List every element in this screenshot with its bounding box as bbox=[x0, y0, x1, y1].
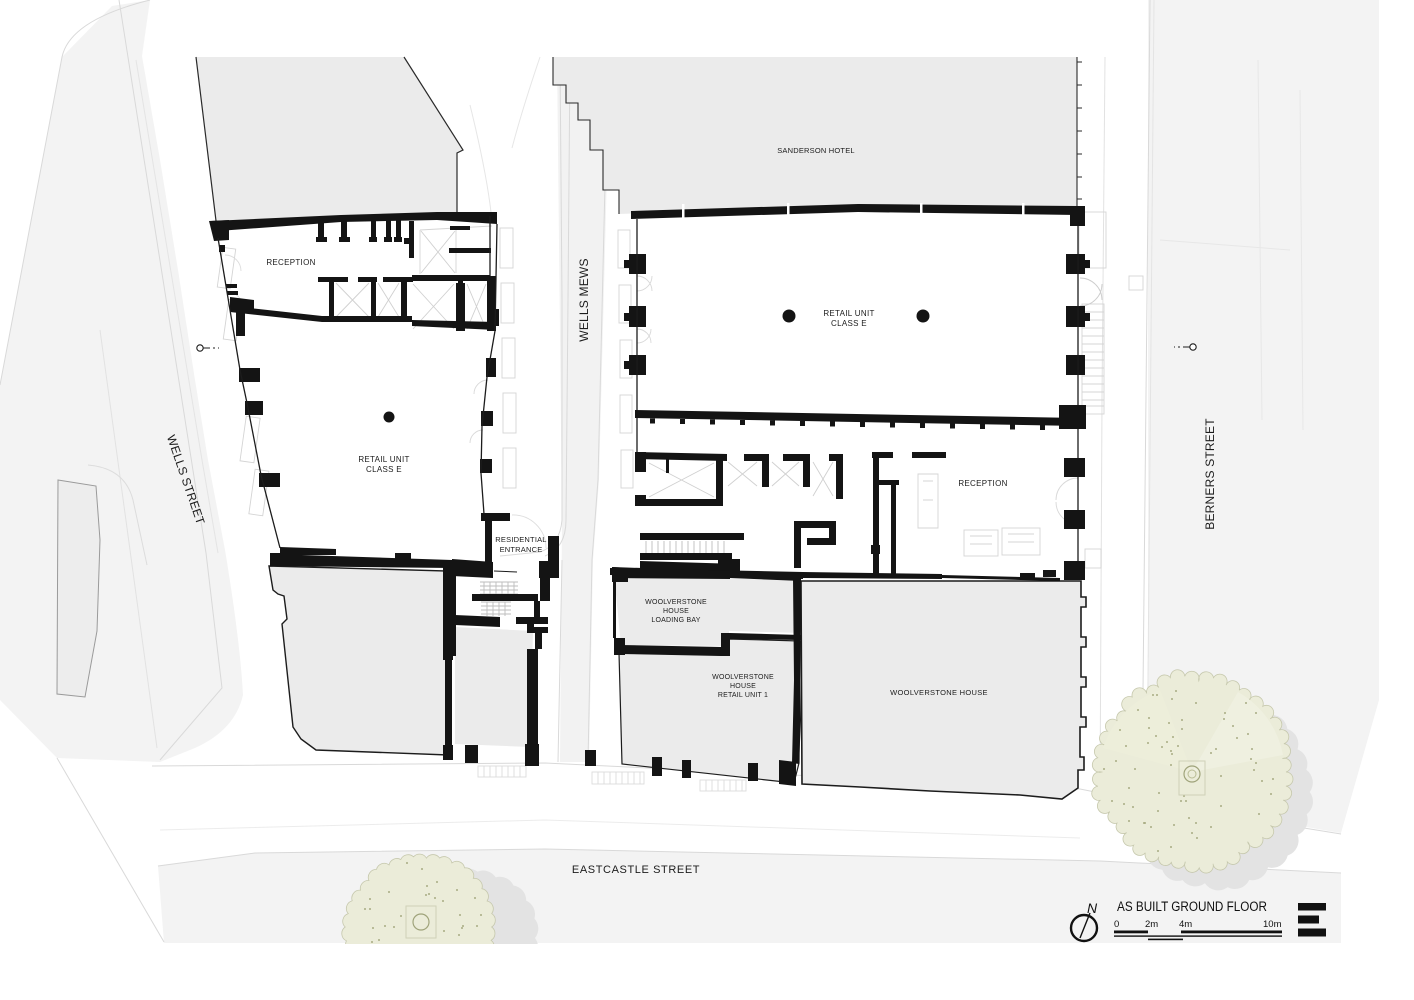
svg-text:EASTCASTLE STREET: EASTCASTLE STREET bbox=[572, 864, 700, 876]
svg-text:0: 0 bbox=[1114, 919, 1119, 930]
svg-text:CLASS E: CLASS E bbox=[366, 465, 402, 474]
svg-text:RESIDENTIAL: RESIDENTIAL bbox=[495, 535, 546, 544]
svg-text:N: N bbox=[1087, 900, 1098, 916]
svg-text:LOADING BAY: LOADING BAY bbox=[651, 617, 700, 624]
svg-text:WELLS MEWS: WELLS MEWS bbox=[577, 258, 591, 341]
svg-text:CLASS E: CLASS E bbox=[831, 319, 867, 328]
svg-text:SANDERSON HOTEL: SANDERSON HOTEL bbox=[777, 146, 855, 155]
svg-text:BERNERS STREET: BERNERS STREET bbox=[1203, 418, 1217, 530]
svg-text:10m: 10m bbox=[1263, 919, 1282, 930]
svg-text:HOUSE: HOUSE bbox=[663, 608, 689, 615]
svg-text:AS BUILT GROUND FLOOR: AS BUILT GROUND FLOOR bbox=[1117, 899, 1267, 914]
svg-text:ENTRANCE: ENTRANCE bbox=[500, 545, 543, 554]
svg-text:HOUSE: HOUSE bbox=[730, 683, 756, 690]
svg-text:RETAIL UNIT 1: RETAIL UNIT 1 bbox=[718, 692, 768, 699]
svg-text:RETAIL UNIT: RETAIL UNIT bbox=[358, 455, 409, 464]
svg-text:WOOLVERSTONE: WOOLVERSTONE bbox=[645, 599, 707, 606]
svg-text:WOOLVERSTONE HOUSE: WOOLVERSTONE HOUSE bbox=[890, 688, 988, 697]
svg-text:WOOLVERSTONE: WOOLVERSTONE bbox=[712, 674, 774, 681]
svg-text:2m: 2m bbox=[1145, 919, 1158, 930]
svg-text:4m: 4m bbox=[1179, 919, 1192, 930]
svg-text:RECEPTION: RECEPTION bbox=[266, 258, 315, 267]
svg-text:RECEPTION: RECEPTION bbox=[958, 479, 1007, 488]
svg-text:RETAIL UNIT: RETAIL UNIT bbox=[823, 309, 874, 318]
